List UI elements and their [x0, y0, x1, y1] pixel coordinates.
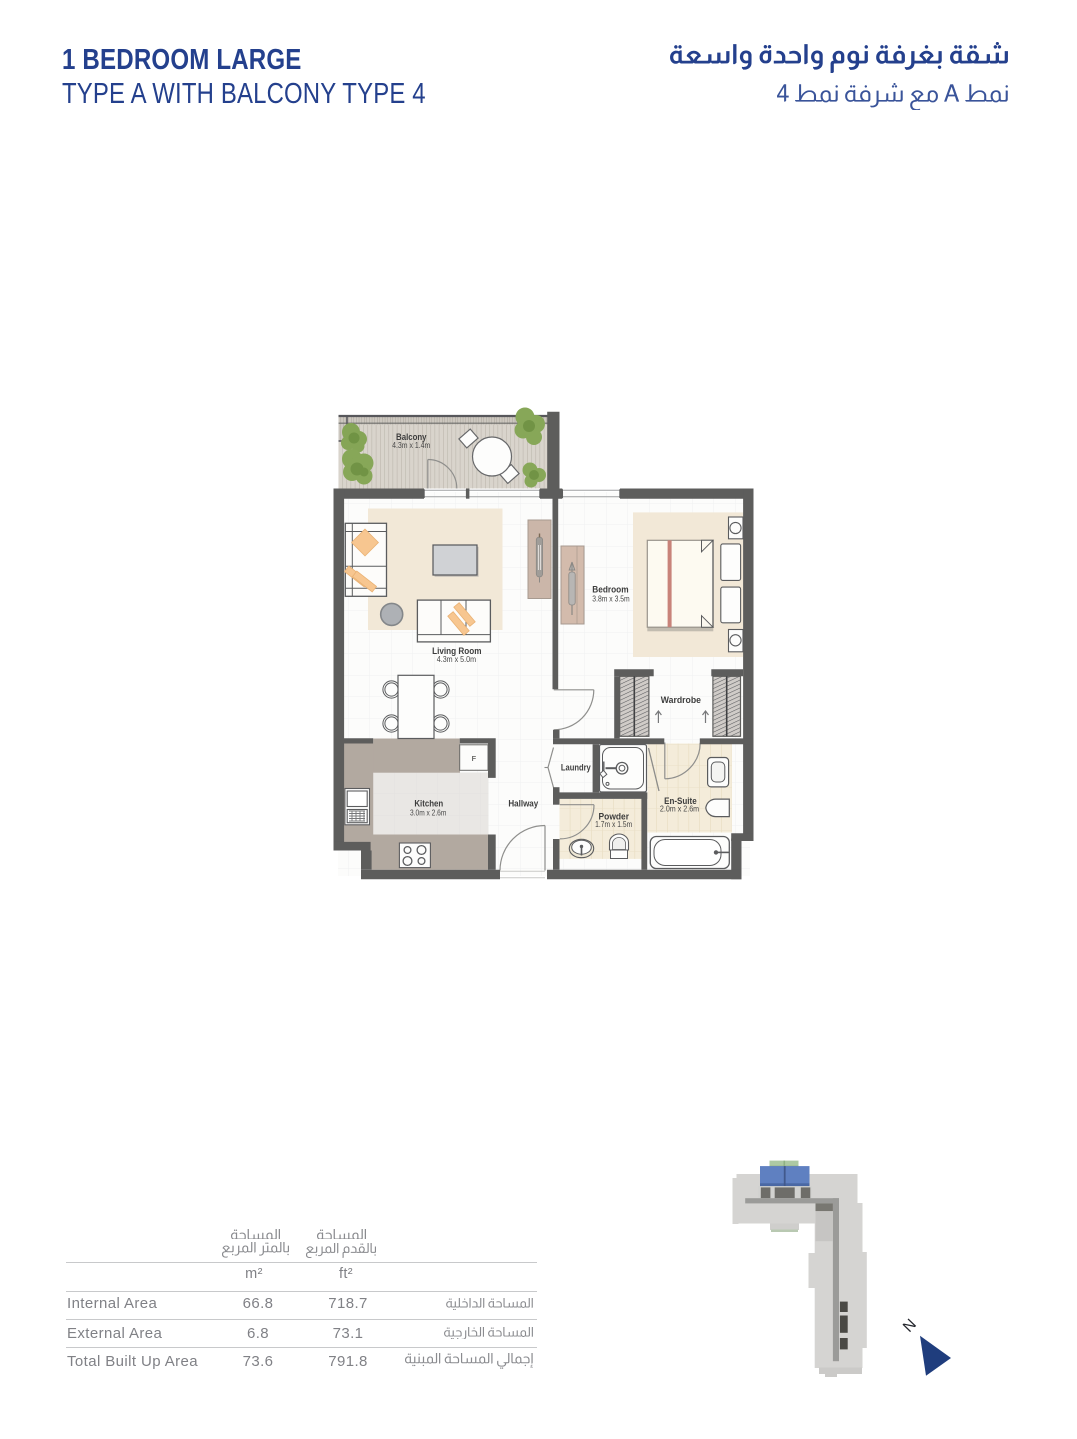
svg-text:N: N — [900, 1316, 920, 1336]
